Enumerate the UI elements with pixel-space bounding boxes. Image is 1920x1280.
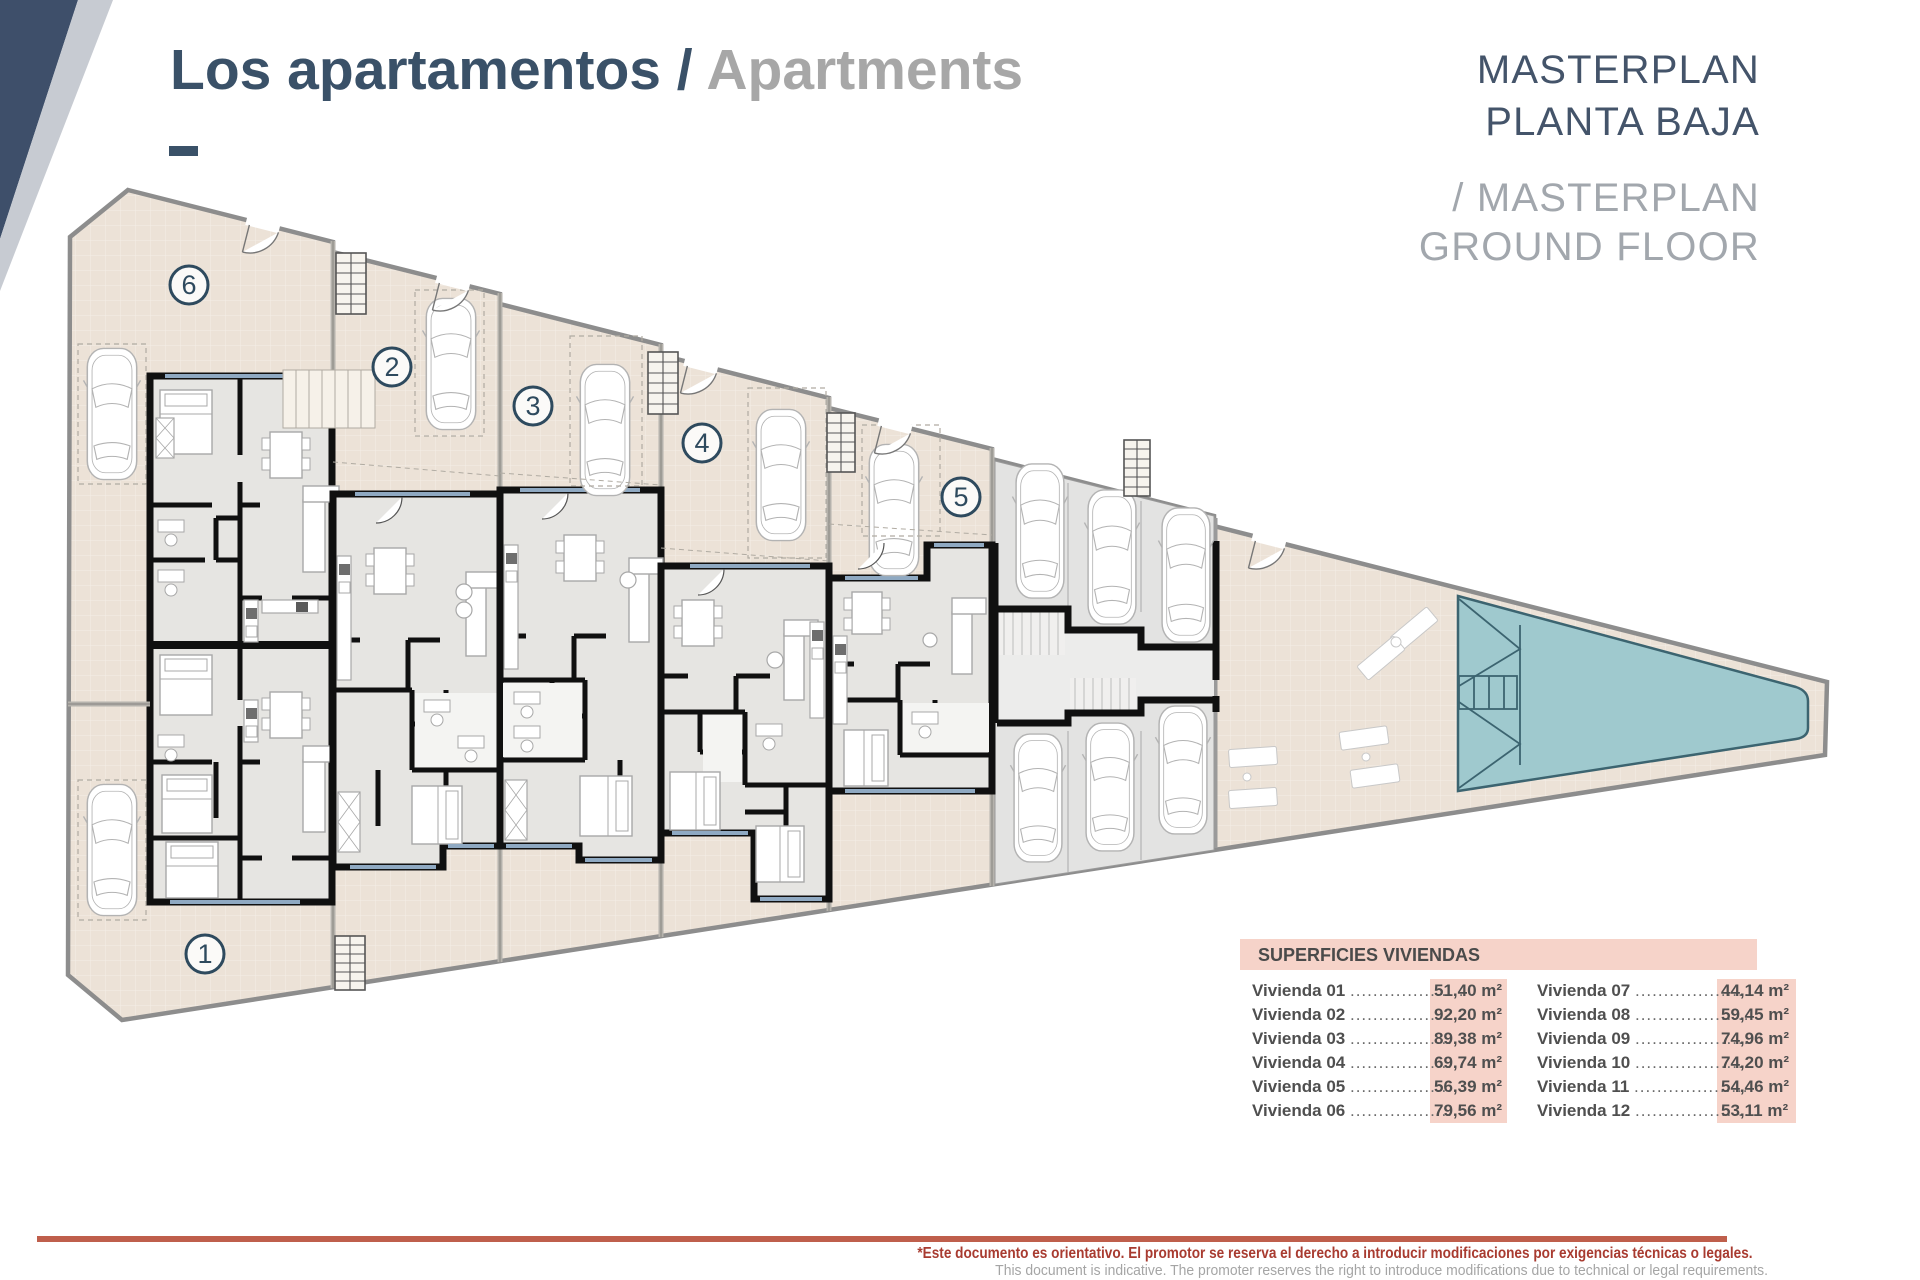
svg-text:6: 6 bbox=[181, 270, 196, 300]
svg-text:3: 3 bbox=[525, 391, 540, 421]
svg-text:1: 1 bbox=[197, 939, 212, 969]
svg-text:5: 5 bbox=[953, 482, 968, 512]
svg-text:4: 4 bbox=[694, 428, 709, 458]
svg-text:2: 2 bbox=[384, 352, 399, 382]
